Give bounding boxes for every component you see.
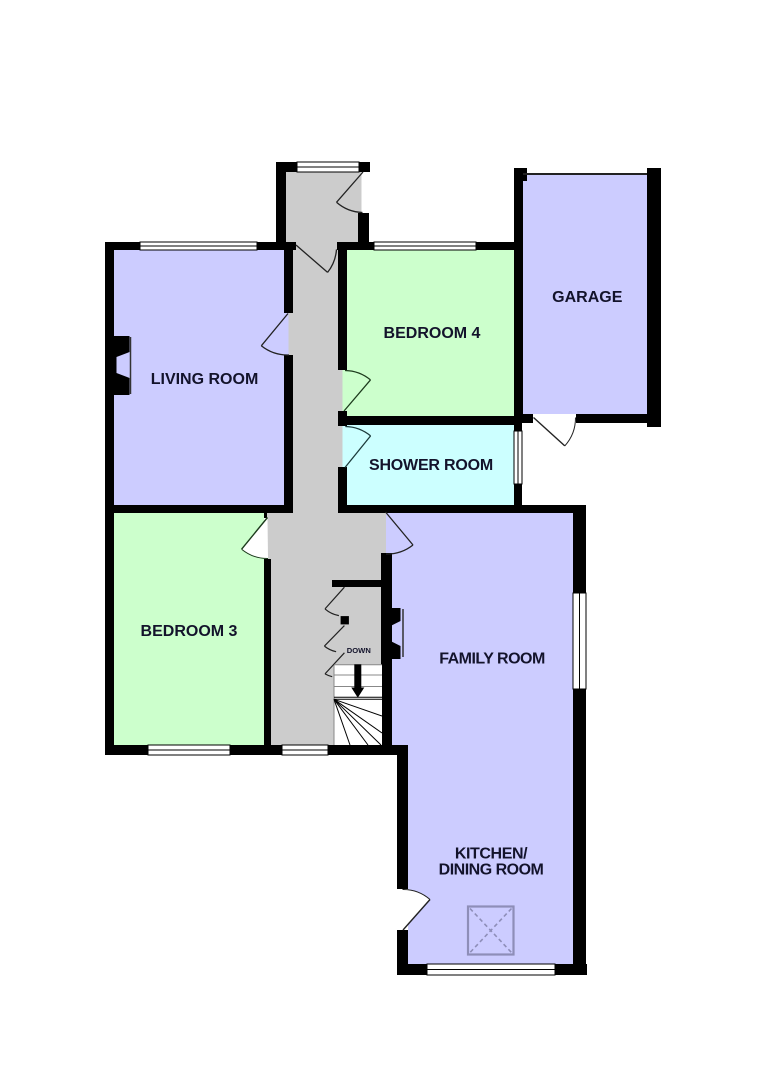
svg-text:DINING ROOM: DINING ROOM xyxy=(439,862,544,879)
svg-text:SHOWER ROOM: SHOWER ROOM xyxy=(369,457,493,474)
svg-text:KITCHEN/: KITCHEN/ xyxy=(455,846,528,863)
svg-text:BEDROOM 3: BEDROOM 3 xyxy=(141,623,238,640)
svg-text:GARAGE: GARAGE xyxy=(552,289,623,306)
svg-text:BEDROOM 4: BEDROOM 4 xyxy=(384,325,481,342)
svg-text:FAMILY ROOM: FAMILY ROOM xyxy=(439,651,545,668)
svg-text:LIVING ROOM: LIVING ROOM xyxy=(151,371,259,388)
svg-text:DOWN: DOWN xyxy=(347,646,371,655)
